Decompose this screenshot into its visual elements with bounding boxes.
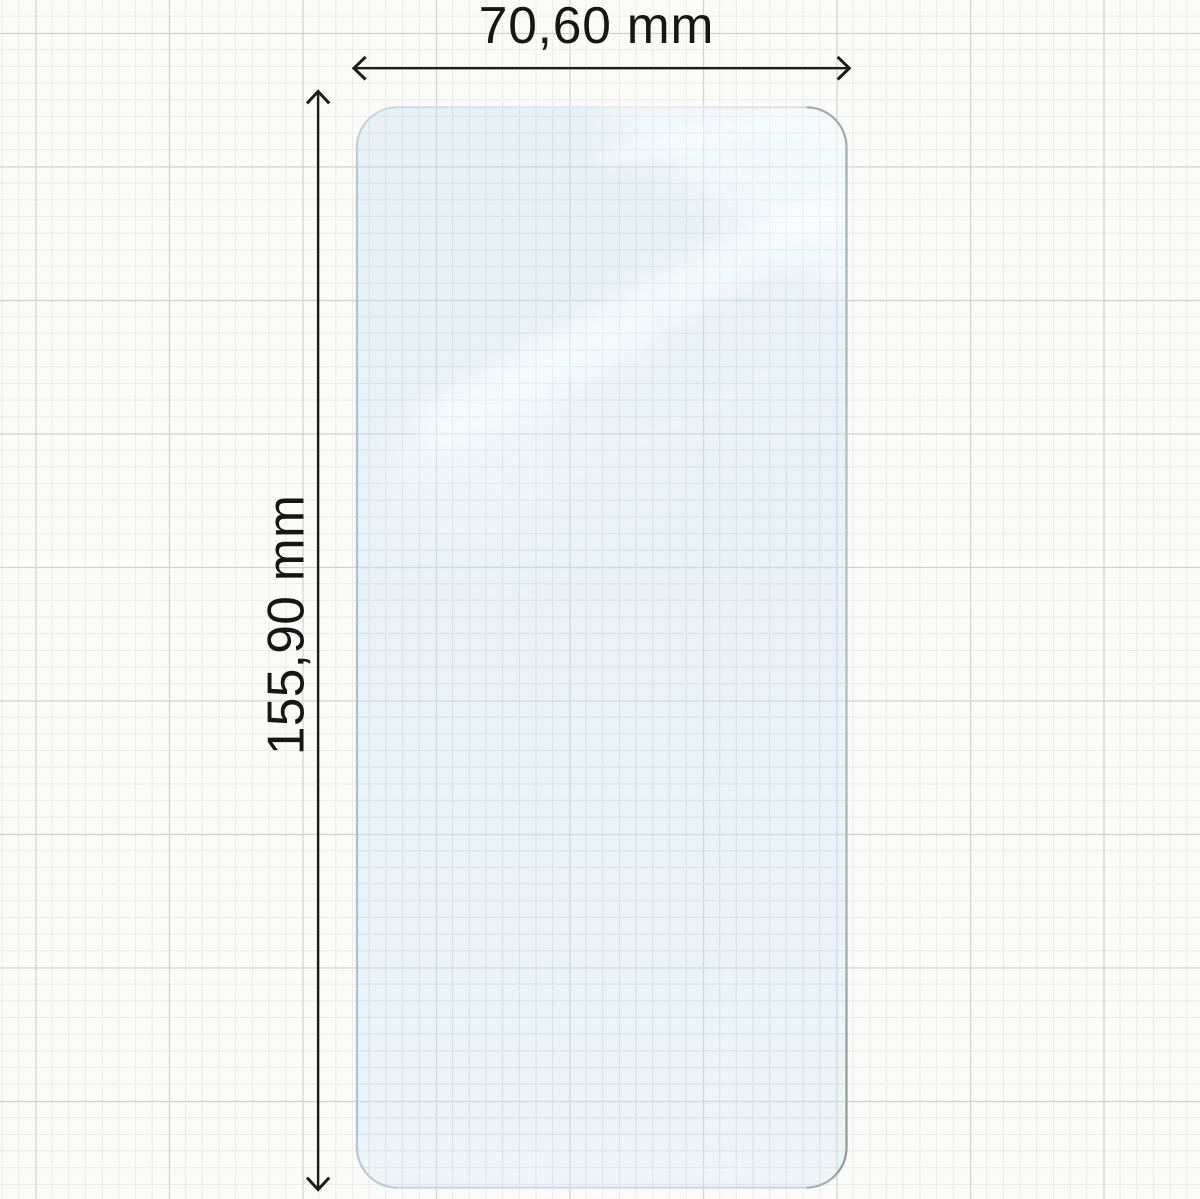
svg-text:70,60 mm: 70,60 mm [479, 0, 714, 54]
svg-text:155,90 mm: 155,90 mm [257, 495, 315, 755]
